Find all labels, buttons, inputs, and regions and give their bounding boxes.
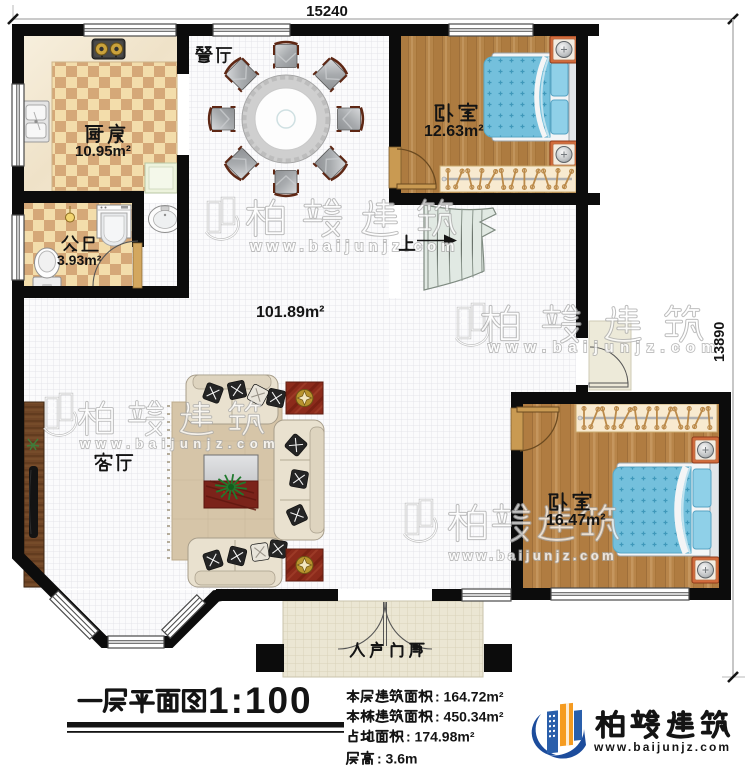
svg-text:13890: 13890 xyxy=(712,322,728,362)
svg-text:: 174.98m²: : 174.98m² xyxy=(406,729,475,745)
svg-text:www.baijunjz.com: www.baijunjz.com xyxy=(448,548,617,563)
svg-text:www.baijunjz.com: www.baijunjz.com xyxy=(487,339,721,356)
svg-text:: 450.34m²: : 450.34m² xyxy=(435,709,504,725)
svg-text:15240: 15240 xyxy=(306,3,348,20)
svg-text:16.47m²: 16.47m² xyxy=(546,512,606,529)
svg-text:10.95m²: 10.95m² xyxy=(75,143,131,160)
svg-text:1:100: 1:100 xyxy=(208,680,313,721)
svg-text:12.63m²: 12.63m² xyxy=(424,123,484,140)
svg-text:101.89m²: 101.89m² xyxy=(256,304,325,321)
svg-text:www.baijunjz.com: www.baijunjz.com xyxy=(249,238,459,255)
svg-text:: 3.6m: : 3.6m xyxy=(377,751,417,767)
svg-text:3.93m²: 3.93m² xyxy=(57,252,102,268)
svg-text:www.baijunjz.com: www.baijunjz.com xyxy=(593,740,731,754)
svg-text:: 164.72m²: : 164.72m² xyxy=(435,689,504,705)
svg-text:www.baijunjz.com: www.baijunjz.com xyxy=(79,436,280,451)
